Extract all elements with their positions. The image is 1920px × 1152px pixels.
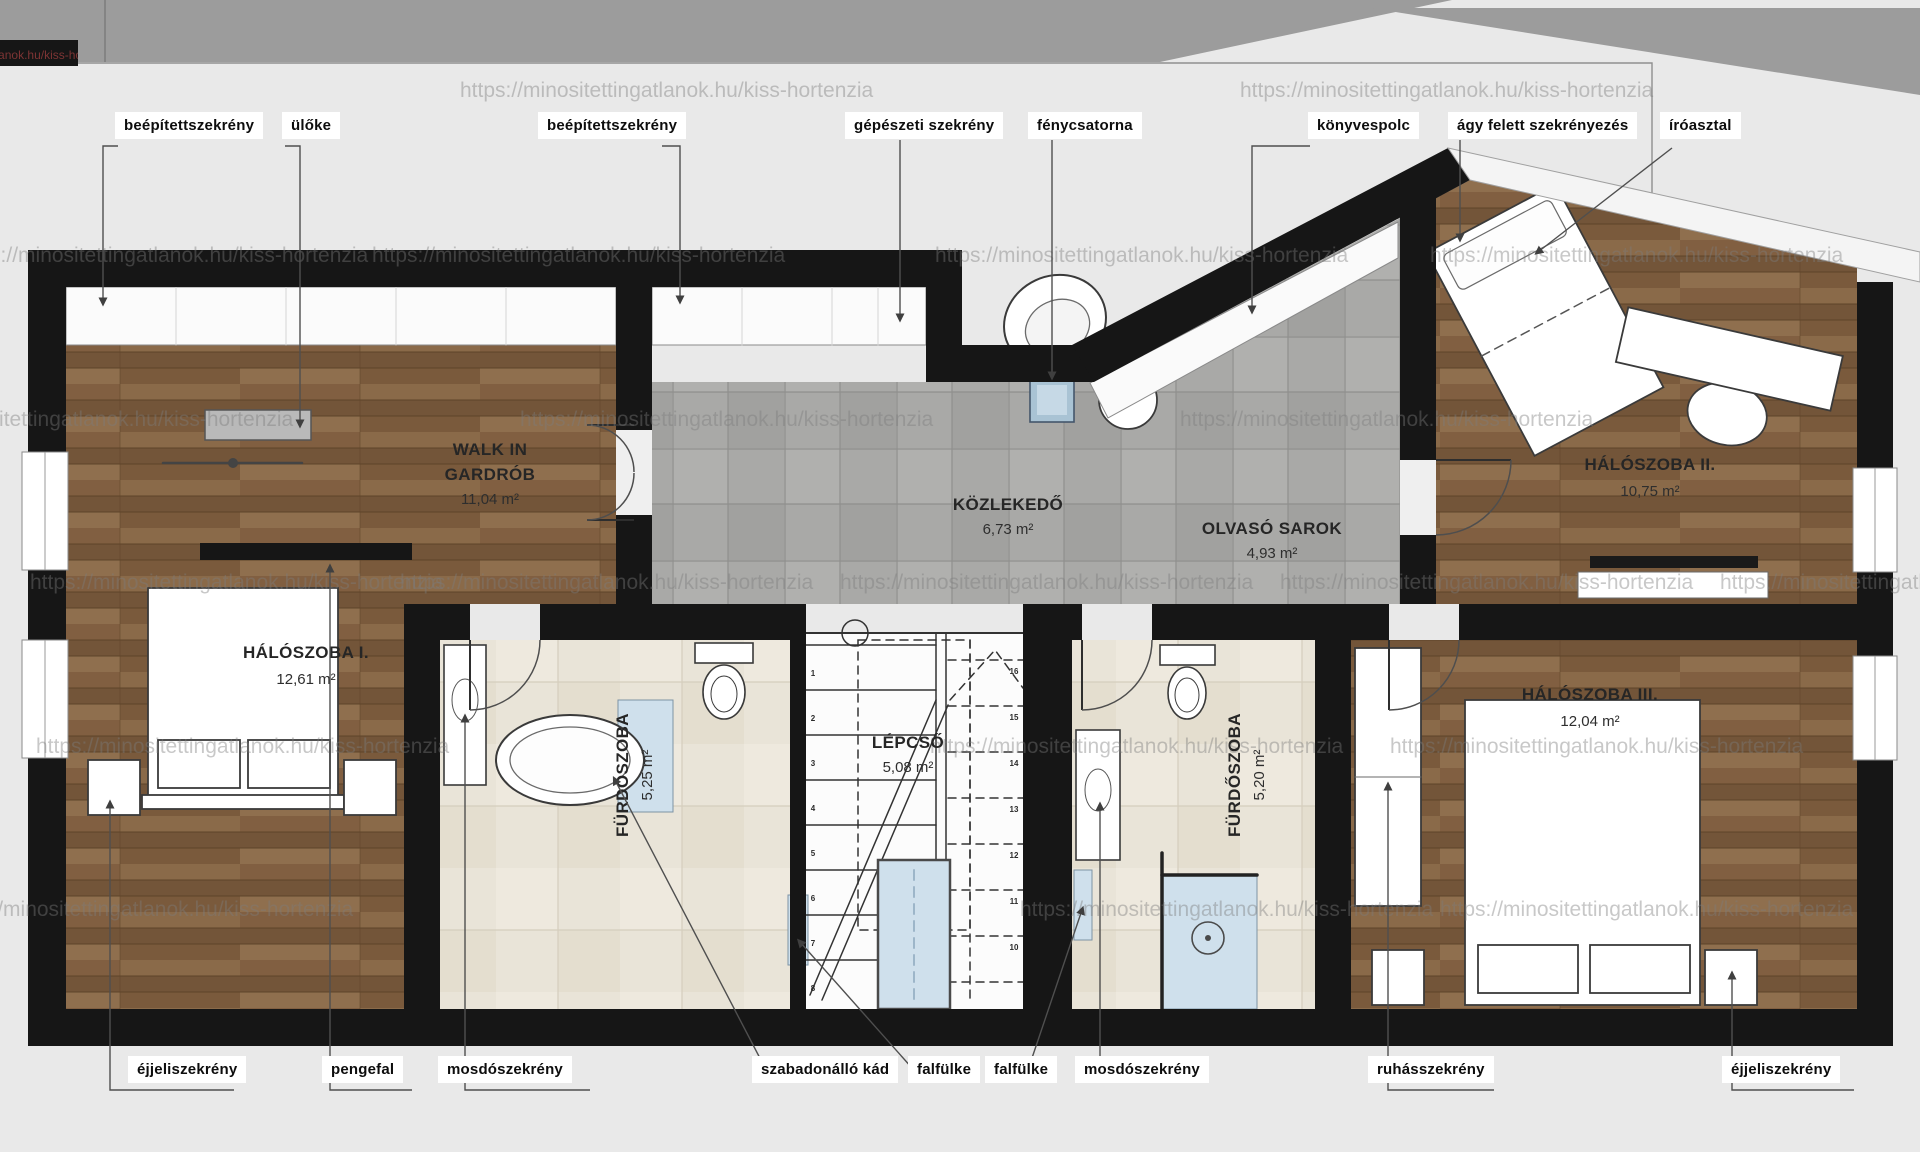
watermark-text: https://minositettingatlanok.hu/kiss-hor… [520,408,934,431]
window [22,452,68,570]
step-number: 13 [1010,805,1019,814]
step-number: 5 [811,849,816,858]
bathtub-inner [510,727,630,793]
room-area-haloszoba2: 10,75 m² [1620,483,1679,500]
callout-washbasin-cabinet-1: mosdószekrény [438,1056,572,1083]
nightstand-right-3 [1705,950,1757,1005]
room-area-kozlekedo: 6,73 m² [983,521,1034,538]
step-number: 7 [811,939,816,948]
basin-2 [1085,769,1111,811]
room-name-gardrob-2: GARDRÓB [445,465,536,484]
callout-bench: ülőke [282,112,340,139]
blade-wall [200,543,412,560]
wall-bath1-top-left [404,604,470,640]
callout-nightstand-1: éjjeliszekrény [128,1056,246,1083]
room-area-furdoszoba1: 5,25 m² [639,750,656,801]
window [1853,656,1897,760]
tv [1590,556,1758,568]
callout-built-in-closet-2: beépítettszekrény [538,112,686,139]
room-name-haloszoba1: HÁLÓSZOBA I. [243,643,369,662]
nightstand-left-3 [1372,950,1424,1005]
wall-bedroom1-bath1 [404,604,440,1009]
step-number: 8 [811,984,816,993]
callout-washbasin-cabinet-2: mosdószekrény [1075,1056,1209,1083]
room-name-furdoszoba1: FÜRDŐSZOBA [613,713,632,837]
watermark-text: https://minositettingatlanok.hu/kiss-hor… [0,408,294,431]
room-area-gardrob: 11,04 m² [461,491,519,508]
callout-wall-niche-1: falfülke [908,1056,980,1083]
watermark-text: https://minositettingatlanok.hu/kiss-hor… [1280,571,1694,594]
watermark-text: https://minositettingatlanok.hu/kiss-hor… [460,79,874,102]
callout-desk: íróasztal [1660,112,1741,139]
wall-bath1-top-right [540,604,806,640]
step-number: 14 [1010,759,1019,768]
callout-freestanding-tub: szabadonálló kád [752,1056,898,1083]
room-name-gardrob: WALK IN [453,440,528,459]
callout-blade-wall: pengefal [322,1056,403,1083]
wall-bath2-top-b [1152,604,1315,640]
wall-bath2-right [1315,604,1351,1010]
wall-stair-right [1023,604,1072,1010]
room-name-furdoszoba2: FÜRDŐSZOBA [1225,713,1244,837]
callout-wall-niche-2: falfülke [985,1056,1057,1083]
room-area-haloszoba1: 12,61 m² [276,671,335,688]
built-in-closet-left [66,287,616,345]
watermark-text: https://minositettingatlanok.hu/kiss-hor… [1240,79,1654,102]
step-number: 1 [811,669,816,678]
window [1853,468,1897,572]
step-number: 6 [811,894,816,903]
room-name-haloszoba2: HÁLÓSZOBA II. [1584,455,1715,474]
step-number: 2 [811,714,816,723]
callout-bookshelf: könyvespolc [1308,112,1419,139]
wall-bath2-top-a [1072,604,1082,640]
basin-1 [452,679,478,721]
watermark-text: https://minositettingatlanok.hu/kiss-hor… [30,571,444,594]
watermark-text: https://minositettingatlanok.hu/kiss-hor… [0,244,369,267]
watermark-text: https://minositettingatlanok.hu/kiss-hor… [36,735,450,758]
watermark-text: https://minositettingatlanok.hu/kiss-hor… [1390,735,1804,758]
callout-built-in-closet-1: beépítettszekrény [115,112,263,139]
room-area-lepcso: 5,08 m² [883,759,934,776]
rail-knob [228,458,238,468]
wall-stair-left [790,604,806,1010]
stair-skylight [878,860,950,1009]
watermark-text: https://minositettingatlanok.hu/kiss-hor… [1020,898,1434,921]
built-in-closet-mid [652,287,926,345]
wall-bedroom3-top-b [1459,604,1857,640]
callout-cabinet-over-bed: ágy felett szekrényezés [1448,112,1637,139]
light-channel-inner [1037,385,1067,415]
room-name-kozlekedo: KÖZLEKEDŐ [953,495,1063,514]
room-name-olvaso: OLVASÓ SAROK [1202,519,1343,538]
nightstand-left [88,760,140,815]
room-name-lepcso: LÉPCSŐ [872,733,944,752]
watermark-text: https://minositettingatlanok.hu/kiss-hor… [372,244,786,267]
callout-nightstand-2: éjjeliszekrény [1722,1056,1840,1083]
step-number: 3 [811,759,816,768]
room-name-haloszoba3: HÁLÓSZOBA III. [1522,685,1658,704]
floor-plan-page: https://minositettingatlanok.hu/kiss-hor… [0,0,1920,1152]
callout-light-channel: fénycsatorna [1028,112,1142,139]
step-number: 10 [1010,943,1019,952]
room-area-furdoszoba2: 5,20 m² [1251,750,1268,801]
wall-step-bottom [926,345,1094,382]
step-number: 11 [1010,897,1019,906]
watermark-text: https://minositettingatlanok.hu/kiss-hor… [1180,408,1594,431]
step-number: 15 [1010,713,1019,722]
callout-mechanical-cabinet: gépészeti szekrény [845,112,1003,139]
step-number: 4 [811,804,816,813]
shower [1162,853,1257,1009]
room-area-olvaso: 4,93 m² [1247,545,1298,562]
watermark-text: https://minositettingatlanok.hu/kiss-hor… [0,898,354,921]
wall-bottom [28,1009,1893,1046]
watermark-text: https://minositettingatlanok.hu/kiss-hor… [1720,571,1920,594]
step-number: 16 [1010,667,1019,676]
watermark-text: https://minositettingatlanok.hu/kiss-hor… [930,735,1344,758]
step-number: 12 [1010,851,1019,860]
watermark-text: https://minositettingatlanok.hu/kiss-hor… [400,571,814,594]
floor-plan-svg: https://minositettingatlanok.hu/kiss-hor… [0,0,1920,1152]
watermark-text: https://minositettingatlanok.hu/kiss-hor… [840,571,1254,594]
watermark-text: https://minositettingatlanok.hu/kiss-hor… [1430,244,1844,267]
nightstand-right-1 [344,760,396,815]
room-area-haloszoba3: 12,04 m² [1560,713,1619,730]
wall-bedroom3-top-a [1351,604,1389,640]
watermark-text: https://minositettingatlanok.hu/kiss-hor… [1440,898,1854,921]
watermark-text: https://minositettingatlanok.hu/kiss-hor… [935,244,1349,267]
callout-wardrobe: ruhásszekrény [1368,1056,1494,1083]
